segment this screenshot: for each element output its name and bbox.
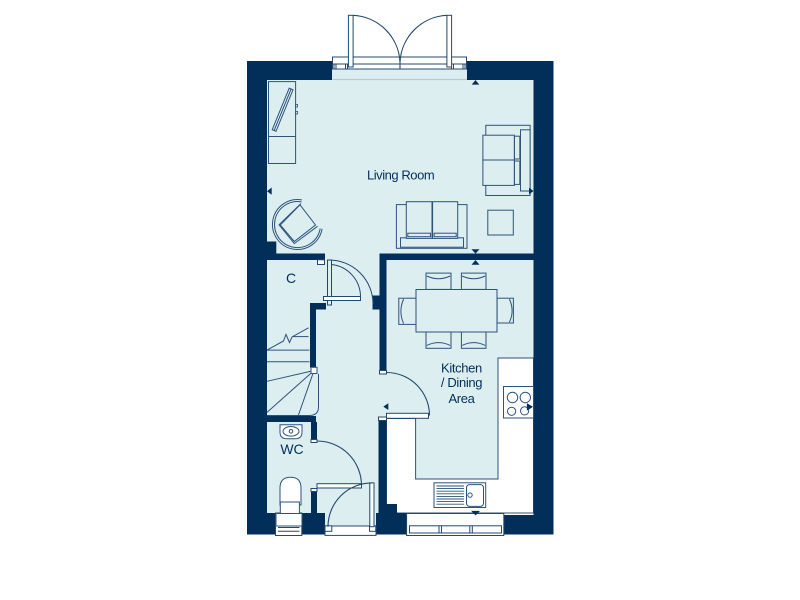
svg-text:Area: Area <box>448 391 475 406</box>
svg-text:/ Dining: / Dining <box>441 375 482 390</box>
svg-text:C: C <box>286 270 296 286</box>
svg-text:WC: WC <box>280 441 303 457</box>
svg-text:Living Room: Living Room <box>367 168 434 183</box>
svg-text:Kitchen: Kitchen <box>441 361 482 376</box>
